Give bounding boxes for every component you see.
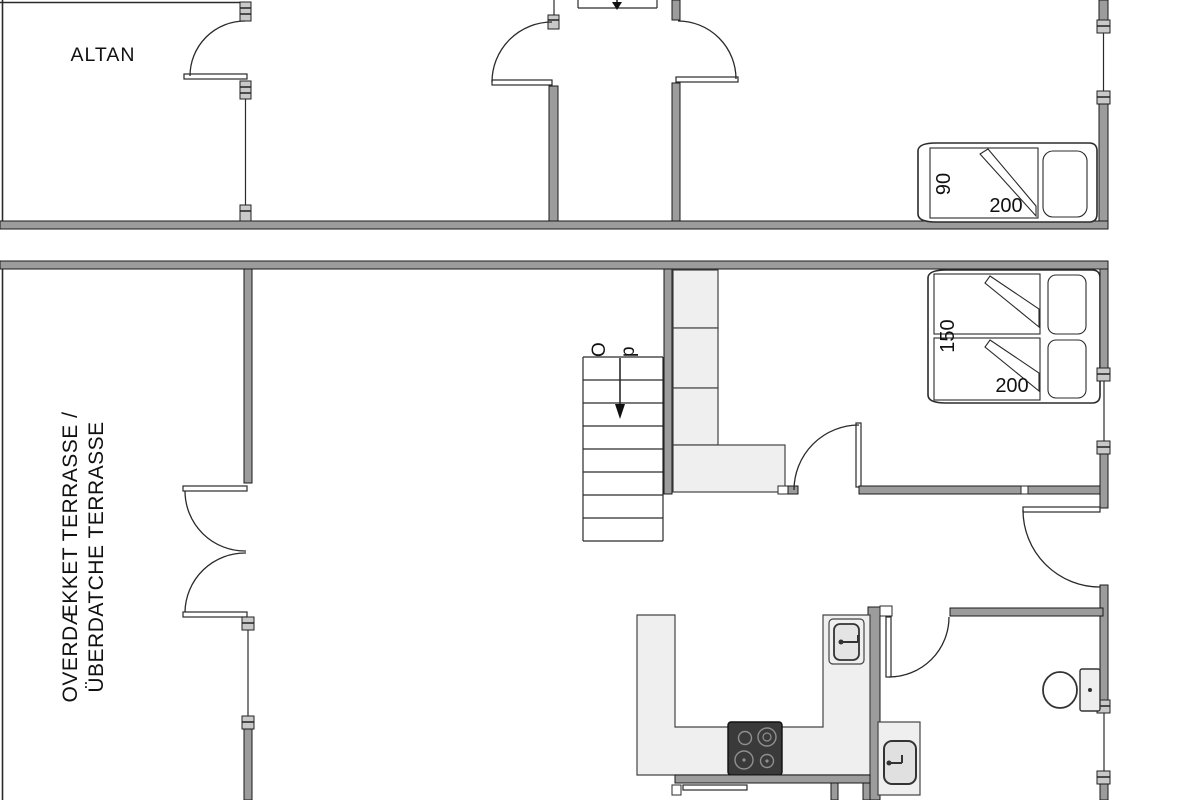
staircase: Op bbox=[583, 342, 663, 541]
single-bed-length-label: 200 bbox=[989, 195, 1022, 217]
kitchen-bottom-wall bbox=[672, 775, 870, 800]
kitchen-counter-block bbox=[673, 445, 785, 492]
toilet-icon bbox=[1043, 669, 1100, 711]
terrace-double-door-leaf-top bbox=[183, 486, 247, 491]
bathroom-door-swing-arc bbox=[889, 617, 949, 677]
upper-right-door-leaf bbox=[676, 77, 738, 82]
balcony-door-window bbox=[184, 2, 251, 221]
bathroom-top-wall bbox=[950, 608, 1103, 616]
lower-floor: OVERDÆKKET TERRASSE / ÜBERDATCHE TERRASS… bbox=[0, 261, 1110, 800]
staircase-top bbox=[578, 0, 657, 10]
covered-terrace-label-line1: OVERDÆKKET TERRASSE / bbox=[59, 412, 82, 703]
double-bed: 150 200 bbox=[928, 270, 1100, 403]
cutoff-door-leaf bbox=[683, 785, 747, 790]
upper-left-door-leaf bbox=[492, 80, 552, 85]
cooktop-icon bbox=[728, 722, 782, 775]
stairs-direction-arrow-head bbox=[615, 404, 625, 419]
upper-right-door-swing-arc bbox=[678, 21, 736, 79]
hall-wall bbox=[778, 423, 1108, 494]
stairs-direction-arrow-head bbox=[612, 2, 622, 10]
terrace-double-door-arc-top bbox=[185, 491, 246, 551]
washbasin-icon bbox=[878, 722, 920, 795]
balcony-label: ALTAN bbox=[71, 44, 136, 66]
hall-door-swing-arc bbox=[794, 425, 859, 490]
lower-top-wall bbox=[0, 261, 1108, 269]
upper-left-door-swing-arc bbox=[492, 22, 552, 82]
balcony-door-leaf bbox=[184, 74, 247, 79]
kitchen-tall-cabinets bbox=[673, 270, 785, 492]
covered-terrace-label-line2: ÜBERDATCHE TERRASSE bbox=[85, 421, 108, 692]
kitchen-sink-icon bbox=[829, 619, 864, 664]
stairwell-wall bbox=[664, 269, 672, 494]
bedroom-door-swing-arc bbox=[1023, 510, 1100, 587]
bedroom-door-leaf bbox=[1023, 507, 1100, 512]
double-bed-pillow bbox=[1048, 275, 1086, 334]
stairs-up-label: Op bbox=[589, 342, 639, 357]
upper-corridor-right-wall bbox=[672, 0, 738, 221]
terrace-double-door-leaf-bottom bbox=[183, 612, 247, 617]
double-bed-pillow bbox=[1048, 340, 1086, 398]
hall-door-leaf bbox=[856, 423, 861, 487]
upper-right-wall bbox=[1097, 0, 1110, 221]
cabinet bbox=[673, 328, 718, 388]
floor-plan-drawing: 90 200 ALTAN OVERDÆKKET TERRASSE / ÜBERD… bbox=[0, 0, 1200, 800]
bathroom-door-leaf bbox=[886, 617, 891, 677]
single-bed: 90 200 bbox=[918, 143, 1097, 222]
single-bed-width-label: 90 bbox=[933, 173, 955, 195]
upper-corridor-left-wall bbox=[492, 0, 559, 221]
kitchen-counter bbox=[637, 615, 870, 775]
double-bed-width-label: 150 bbox=[937, 319, 959, 352]
floor-plan: 90 200 ALTAN OVERDÆKKET TERRASSE / ÜBERD… bbox=[0, 0, 1200, 800]
balcony-door-swing-arc bbox=[190, 21, 245, 76]
terrace-wall bbox=[183, 269, 254, 800]
double-bed-length-label: 200 bbox=[995, 375, 1028, 397]
terrace-double-door-arc-bottom bbox=[185, 553, 246, 612]
cabinet bbox=[673, 388, 718, 445]
cabinet bbox=[673, 270, 718, 328]
single-bed-pillow bbox=[1043, 151, 1087, 217]
upper-floor: 90 200 ALTAN bbox=[0, 0, 1110, 229]
